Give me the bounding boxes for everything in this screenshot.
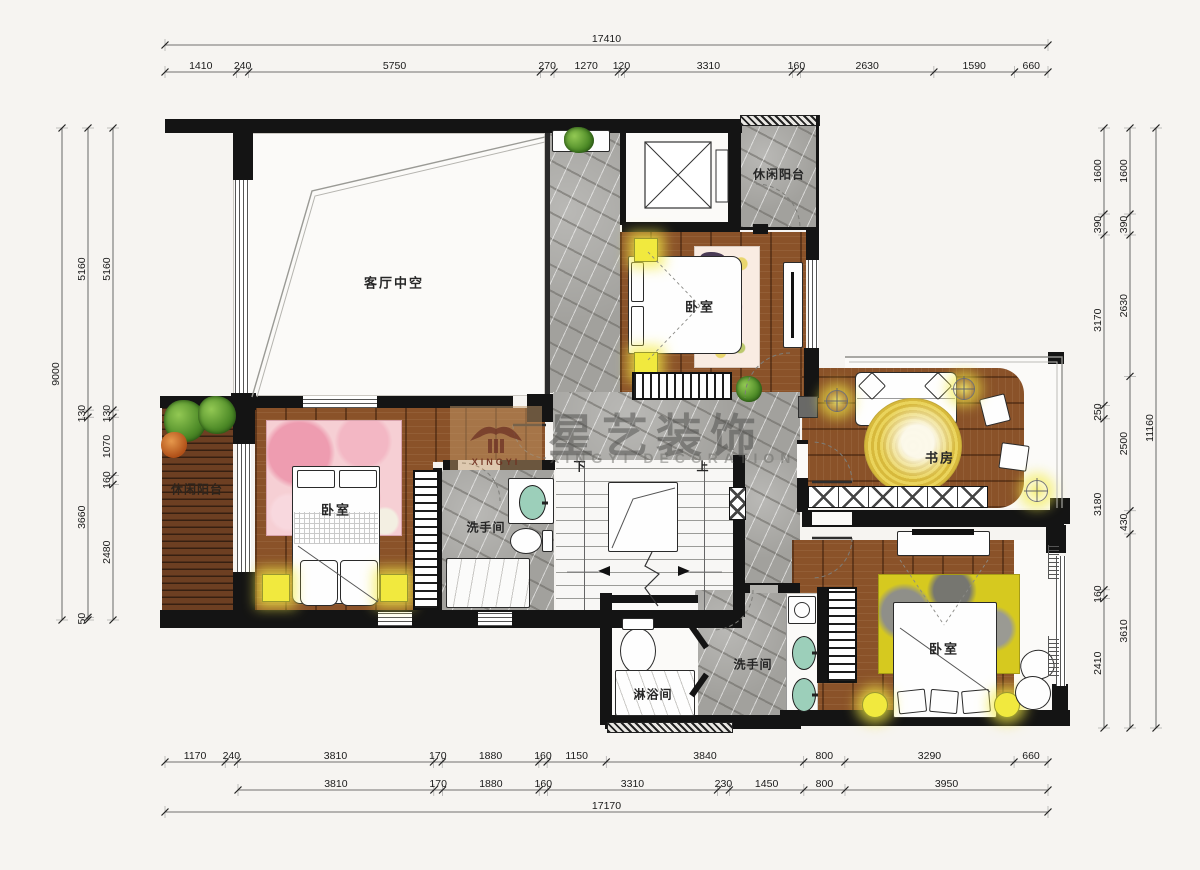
dim-label: 240: [234, 60, 252, 72]
plant: [198, 396, 236, 434]
dim-label: 2630: [1118, 294, 1130, 318]
room-label-study: 书房: [925, 448, 955, 467]
dim-label: 160: [535, 778, 553, 790]
window: [235, 180, 249, 395]
ceiling-light: [1026, 480, 1048, 502]
armchair: [340, 560, 378, 606]
corridor-top-floor: [545, 133, 620, 393]
wall: [753, 224, 768, 234]
dim-label: 250: [1092, 403, 1104, 421]
toilet-tank: [542, 530, 553, 552]
ac-unit: [798, 396, 818, 418]
wall: [806, 230, 819, 260]
window: [303, 396, 377, 408]
dim-label: 1150: [565, 750, 588, 762]
wall: [728, 119, 741, 230]
dim-label: 230: [715, 778, 733, 790]
pillow: [297, 470, 335, 488]
round-rug: [864, 398, 962, 494]
watermark-logo-text: XINGYI: [472, 457, 521, 467]
watermark-logo: XINGYI: [450, 406, 542, 470]
stair-divider: [584, 462, 585, 610]
wall-pier: [233, 572, 255, 614]
window: [808, 260, 818, 348]
wall: [817, 587, 827, 683]
desk-chair: [998, 442, 1029, 472]
dim-label: 660: [1022, 60, 1040, 72]
dim-label: 1070: [101, 435, 113, 459]
dim-label: 3290: [918, 750, 942, 762]
door-opening: [812, 512, 852, 525]
wall: [612, 595, 698, 603]
dim-label: 1880: [479, 778, 503, 790]
dim-label: 130: [76, 405, 88, 423]
dim-label: 5750: [383, 60, 407, 72]
dim-label: 5160: [76, 257, 88, 281]
pillow: [631, 306, 644, 346]
toilet-bowl: [510, 528, 542, 554]
room-label-bathroom-mid: 洗手间: [466, 519, 505, 536]
dim-label: 270: [538, 60, 556, 72]
wardrobe: [632, 372, 732, 400]
room-label-bedroom-bottom: 卧室: [929, 639, 959, 658]
dim-label: 160: [101, 471, 113, 489]
wall: [165, 119, 742, 133]
dim-label: 3610: [1118, 619, 1130, 643]
pillow: [897, 689, 927, 715]
dim-label: 160: [1092, 585, 1104, 603]
dim-label: 1590: [963, 60, 987, 72]
curtain-icon: [1048, 545, 1059, 579]
dim-label: 3950: [935, 778, 959, 790]
stair-landing: [608, 482, 678, 552]
ceiling-light: [826, 390, 848, 412]
wall: [1052, 684, 1068, 716]
wall: [600, 593, 612, 725]
wall-pier: [233, 133, 253, 180]
dim-label: 1170: [184, 750, 207, 762]
dim-label: 1270: [575, 60, 599, 72]
living-void-floor: [233, 133, 545, 396]
pillow: [339, 470, 377, 488]
plant: [736, 376, 762, 402]
curtain-icon: [1048, 636, 1059, 676]
wall: [1048, 352, 1064, 364]
floor-plan-sheet: 1410240575027012701203310160263015906601…: [0, 0, 1200, 870]
dim-label: 3170: [1092, 308, 1104, 332]
dim-label: 130: [101, 405, 113, 423]
ceiling-light: [953, 378, 975, 400]
elevator-floor: [620, 133, 730, 225]
dim-label: 170: [429, 750, 447, 762]
toilet-tank: [622, 618, 654, 630]
dim-label: 430: [1118, 513, 1130, 531]
dim-label: 120: [613, 60, 631, 72]
dim-label: 800: [816, 750, 834, 762]
toilet-bowl: [620, 628, 656, 674]
dim-label: 2480: [101, 540, 113, 564]
dim-label: 9000: [50, 362, 62, 386]
dim-label: 3810: [324, 750, 348, 762]
nightstand-lamp: [862, 692, 888, 718]
dim-label: 1410: [189, 60, 213, 72]
wall: [733, 519, 745, 617]
dim-label: 160: [534, 750, 552, 762]
wardrobe: [827, 587, 857, 683]
dim-label: 3180: [1092, 493, 1104, 517]
wall: [804, 348, 819, 398]
nightstand-lamp: [634, 238, 658, 262]
window: [478, 612, 512, 626]
wall: [816, 115, 819, 230]
dim-label: 240: [223, 750, 241, 762]
window: [237, 444, 251, 572]
sink: [519, 485, 546, 520]
wall: [620, 133, 626, 225]
dim-label: 2410: [1092, 651, 1104, 675]
nightstand-lamp: [380, 574, 408, 602]
washing-machine-drum: [794, 602, 810, 618]
dim-label: 2630: [856, 60, 880, 72]
pillow: [961, 689, 991, 714]
dim-label: 390: [1092, 216, 1104, 234]
door-opening: [750, 585, 778, 593]
dim-label: 1600: [1118, 159, 1130, 183]
dim-label: 3810: [324, 778, 348, 790]
armchair: [300, 560, 338, 606]
dim-label: 1600: [1092, 159, 1104, 183]
room-label-balcony-left: 休闲阳台: [171, 481, 223, 498]
wall-pier: [233, 398, 255, 444]
dim-label: 3840: [693, 750, 717, 762]
pillow: [929, 689, 959, 714]
bookshelf: [808, 486, 988, 508]
room-label-living-void: 客厅中空: [364, 273, 424, 292]
dim-label: 170: [429, 778, 447, 790]
room-label-bedroom-top: 卧室: [685, 297, 715, 316]
dim-label: 800: [816, 778, 834, 790]
dim-label: 50: [76, 613, 88, 625]
wardrobe: [413, 470, 439, 610]
dim-label: 660: [1022, 750, 1040, 762]
sink: [792, 678, 816, 712]
window: [378, 612, 412, 626]
dim-label: 160: [788, 60, 806, 72]
door-opening: [797, 444, 808, 478]
bathtub: [446, 558, 530, 608]
sink: [792, 636, 816, 670]
room-label-bedroom-left: 卧室: [321, 500, 351, 519]
tv: [912, 529, 974, 535]
room-label-shower: 淋浴间: [633, 686, 672, 703]
dim-label: 3310: [697, 60, 721, 72]
plant: [564, 127, 594, 153]
nightstand-lamp: [262, 574, 290, 602]
dim-label: 3310: [621, 778, 645, 790]
tv: [791, 272, 794, 338]
hatched-wall: [740, 115, 820, 126]
dim-label: 11160: [1144, 414, 1156, 442]
dim-label: 17410: [592, 33, 621, 45]
wall: [622, 222, 740, 232]
wall: [545, 133, 550, 395]
dim-label: 390: [1118, 216, 1130, 234]
dim-label: 3660: [76, 505, 88, 529]
dim-label: 1450: [755, 778, 779, 790]
dim-label: 2500: [1118, 432, 1130, 456]
stair-divider: [704, 462, 705, 610]
column-box: [729, 487, 746, 520]
room-label-bathroom-bottom: 洗手间: [733, 656, 772, 673]
watermark-brand-en: XINGYI DECORATION: [550, 450, 796, 466]
dim-label: 17170: [592, 800, 621, 812]
hatched-sill: [607, 722, 733, 733]
room-label-balcony-top-right: 休闲阳台: [753, 166, 805, 183]
pillow: [631, 262, 644, 302]
dim-label: 5160: [101, 257, 113, 281]
dim-label: 1880: [479, 750, 503, 762]
watermark-bird-icon: [466, 419, 526, 457]
